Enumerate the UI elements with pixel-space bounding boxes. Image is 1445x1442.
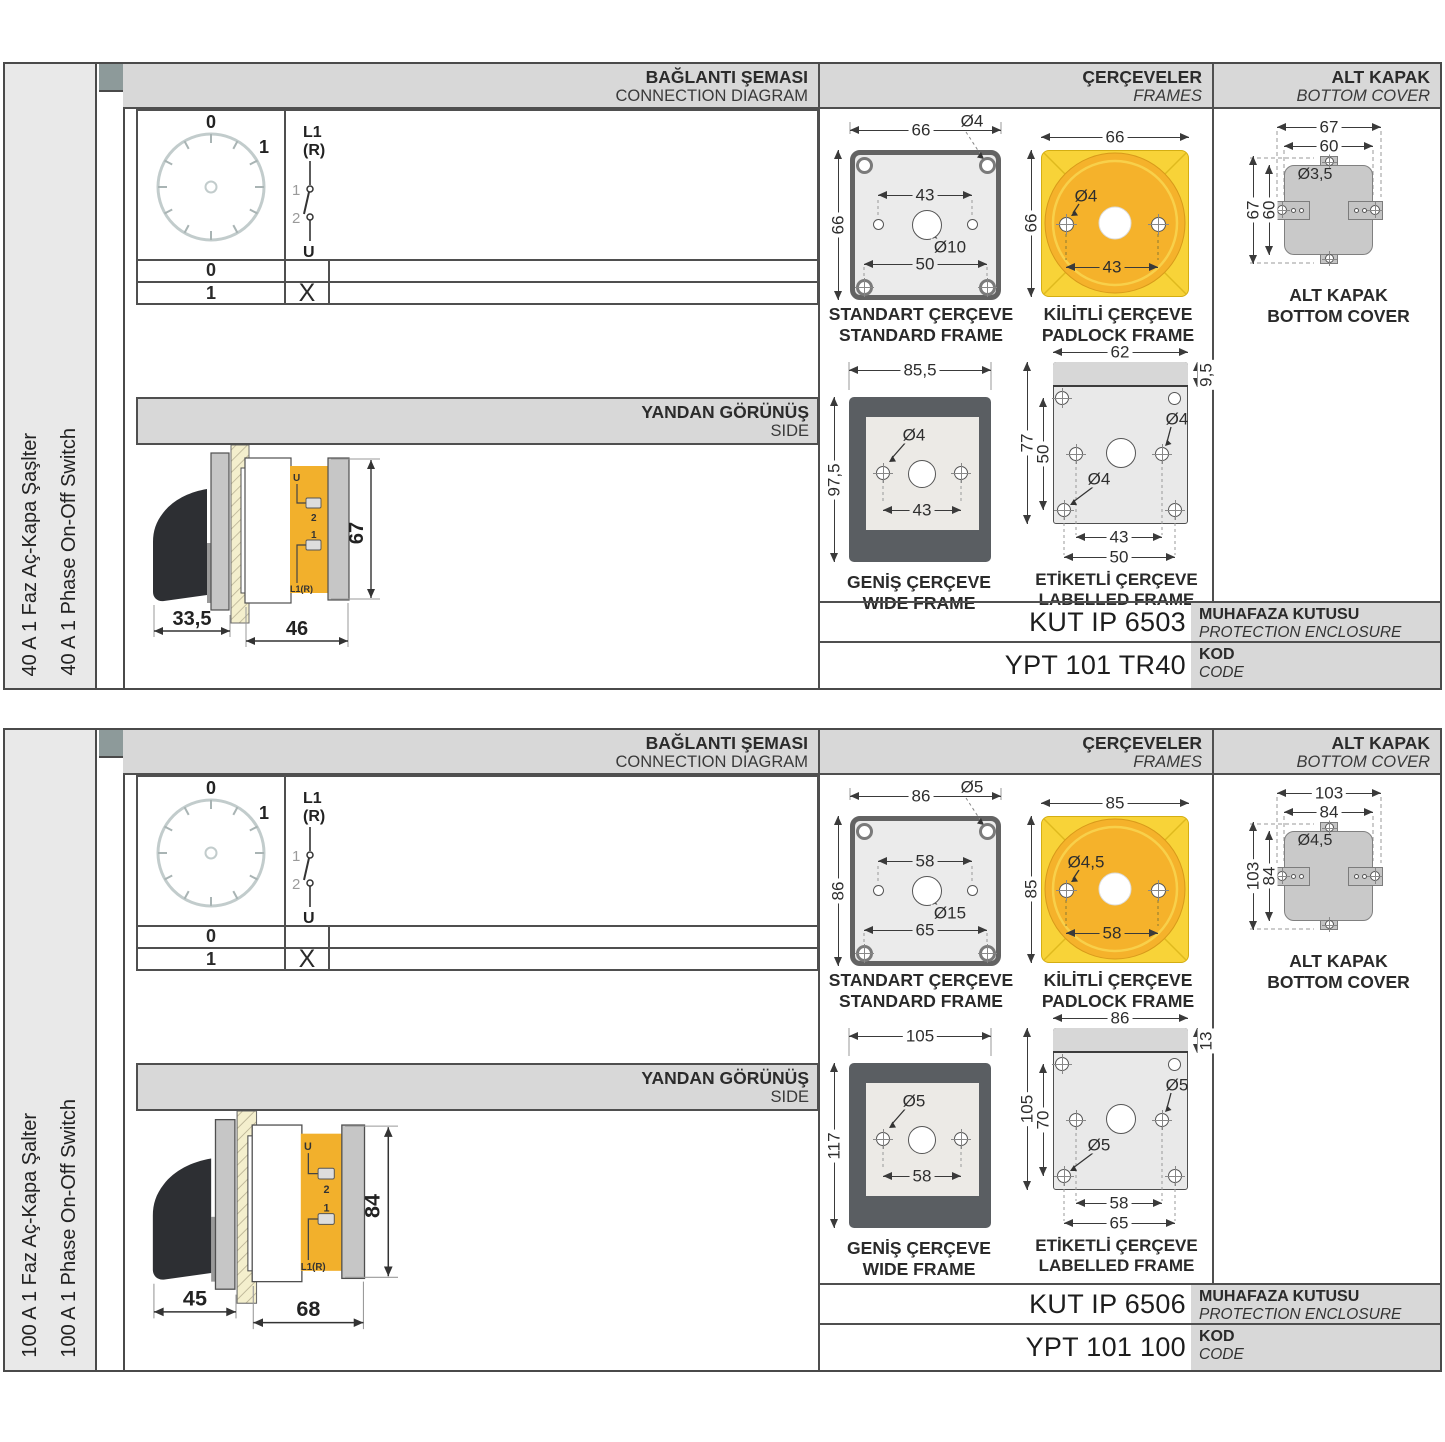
corner-hole: [856, 279, 873, 296]
terminal-block: [301, 1134, 343, 1271]
product-panel: 100 A 1 Faz Aç-Kapa Şalter 100 A 1 Phase…: [3, 728, 1442, 1372]
caption-tr: STANDART ÇERÇEVE: [826, 970, 1016, 991]
switch-output-label: U: [303, 910, 315, 925]
caption-tr: ETİKETLİ ÇERÇEVE: [1019, 570, 1214, 590]
mount-hole: [967, 219, 978, 230]
side-label-tr: 100 A 1 Faz Aç-Kapa Şalter: [19, 1113, 42, 1358]
table-divider: [328, 259, 330, 303]
bottom-cover-caption: ALT KAPAK BOTTOM COVER: [1236, 285, 1441, 327]
front-plate: [211, 453, 229, 610]
table-row0-value: 0: [206, 926, 216, 947]
dim-hole-span: 43: [1100, 259, 1125, 276]
spine-strip: [99, 64, 125, 688]
product-panel: 40 A 1 Faz Aç-Kapa Şaşlter 40 A 1 Phase …: [3, 62, 1442, 690]
table-row1-value: 1: [206, 949, 216, 970]
tab-hole: [1325, 823, 1334, 832]
side-label-column: 40 A 1 Faz Aç-Kapa Şaşlter 40 A 1 Phase …: [5, 64, 97, 688]
code-label: KOD CODE: [1191, 1325, 1440, 1370]
caption-en: BOTTOM COVER: [1236, 972, 1441, 993]
table-row0-position: 0: [138, 259, 284, 281]
bottom-cover-caption: ALT KAPAK BOTTOM COVER: [1236, 951, 1441, 993]
caption-en: STANDARD FRAME: [826, 991, 1016, 1012]
table-row1-position: 1: [138, 947, 284, 971]
shaft-hole: [912, 210, 942, 240]
terminal-l1-label: L1(R): [301, 1262, 326, 1273]
header-side-en: SIDE: [138, 422, 809, 441]
caption-en: WIDE FRAME: [824, 1259, 1014, 1280]
connector-2-label: 2: [323, 1184, 329, 1196]
dim-width: 85,5: [900, 362, 939, 379]
dim-span-1: 43: [1107, 529, 1132, 546]
dim-width: 85: [1103, 795, 1128, 812]
header-bottom-cover-en: BOTTOM COVER: [1214, 87, 1430, 106]
corner-hole: [856, 945, 873, 962]
dim-height: 66: [830, 213, 847, 238]
header-connection-en: CONNECTION DIAGRAM: [123, 753, 808, 772]
enclosure-code: KUT IP 6506: [818, 1285, 1191, 1323]
dial-position-0: 0: [206, 112, 216, 132]
header-frames: ÇERÇEVELER FRAMES: [820, 64, 1212, 109]
mount-hole: [1055, 391, 1069, 405]
header-frames: ÇERÇEVELER FRAMES: [820, 730, 1212, 775]
dim-hole-dia: Ø4: [900, 427, 929, 444]
terminal-u-label: U: [304, 1141, 312, 1153]
labelled-frame-drawing: 86 13 105 70 Ø5 Ø5 58 65 ETİKETLİ ÇERÇEV…: [1019, 1013, 1214, 1269]
switch-input-alt-label: (R): [303, 808, 325, 825]
wide-frame-drawing: 85,5 97,5 Ø4 43 GENİŞ ÇERÇEVE WIDE FRAME: [824, 350, 1014, 602]
dim-height: 67: [346, 522, 368, 544]
terminal-1-label: 1: [292, 182, 300, 199]
dim-inner-height: 50: [1035, 442, 1052, 467]
caption-tr: ALT KAPAK: [1236, 951, 1441, 972]
header-bottom-cover-en: BOTTOM COVER: [1214, 753, 1430, 772]
tab-dot: [1354, 874, 1359, 879]
tab-dot: [1354, 208, 1359, 213]
dial-position-0: 0: [206, 778, 216, 798]
caption-tr: GENİŞ ÇERÇEVE: [824, 1238, 1014, 1259]
tab-hole: [1370, 205, 1380, 215]
header-side-view: YANDAN GÖRÜNÜŞ SIDE: [136, 1063, 819, 1111]
padlock-hole: [1151, 217, 1166, 232]
switch-schematic: L1 (R) 1 2 U: [285, 111, 347, 259]
dim-outer-width: 103: [1312, 785, 1346, 802]
tab-dot: [1362, 208, 1367, 213]
table-row1-contact: X: [286, 947, 328, 971]
dim-hole-span: 43: [913, 187, 938, 204]
switch-input-alt-label: (R): [303, 142, 325, 159]
dim-inner-width: 84: [1317, 804, 1342, 821]
dim-height: 66: [1023, 211, 1040, 236]
code-label-en: CODE: [1199, 1346, 1440, 1364]
table-row1-contact: X: [286, 281, 328, 305]
corner-hole: [979, 279, 996, 296]
header-bottom-cover: ALT KAPAK BOTTOM COVER: [1214, 730, 1440, 775]
padlock-hole: [1059, 217, 1074, 232]
bottom-cover-drawing: 103 84 103 84 Ø4,5 ALT KAPAK BOTTOM COVE…: [1236, 783, 1441, 1003]
standard-frame-drawing: 86 Ø5 86 58 Ø15 65 STANDART ÇERÇEVE STAN…: [826, 778, 1016, 1028]
switch-schematic: L1 (R) 1 2 U: [285, 777, 347, 925]
tab-hole: [1325, 254, 1334, 263]
terminal-block: [290, 466, 329, 593]
connector-1: [318, 1214, 334, 1225]
wide-frame-drawing: 105 117 Ø5 58 GENİŞ ÇERÇEVE WIDE FRAME: [824, 1016, 1014, 1268]
corner-hole: [979, 157, 996, 174]
dim-span-1: 58: [1107, 1195, 1132, 1212]
tab-dot: [1299, 208, 1304, 213]
dim-width: 86: [1108, 1010, 1133, 1027]
mount-hole: [1155, 1113, 1169, 1127]
mount-hole: [1155, 447, 1169, 461]
dim-span-2: 50: [1107, 549, 1132, 566]
standard-frame-caption: STANDART ÇERÇEVE STANDARD FRAME: [826, 970, 1016, 1012]
shaft-hole: [1106, 1104, 1136, 1134]
padlock-hole: [1059, 883, 1074, 898]
caption-tr: ALT KAPAK: [1236, 285, 1441, 306]
table-row0-position: 0: [138, 925, 284, 947]
header-connection-en: CONNECTION DIAGRAM: [123, 87, 808, 106]
connection-diagram-box: 0 1 L1 (R) 1 2 U 0 1 X: [136, 775, 819, 971]
side-label-en: 40 A 1 Phase On-Off Switch: [58, 428, 81, 676]
plain-hole: [1168, 392, 1181, 405]
product-code: YPT 101 100: [818, 1325, 1191, 1370]
spine-strip: [99, 730, 125, 1370]
caption-en: LABELLED FRAME: [1019, 1256, 1214, 1276]
mount-hole: [1069, 447, 1083, 461]
enclosure-label-en: PROTECTION ENCLOSURE: [1199, 1306, 1440, 1324]
tab-hole: [1370, 871, 1380, 881]
caption-tr: ETİKETLİ ÇERÇEVE: [1019, 1236, 1214, 1256]
tab-dot: [1299, 874, 1304, 879]
dim-hole-dia-1: Ø4: [1163, 411, 1192, 428]
header-frames-tr: ÇERÇEVELER: [820, 67, 1202, 87]
dim-strip-height: 9,5: [1198, 360, 1215, 390]
dim-height: 85: [1023, 877, 1040, 902]
dim-height: 86: [830, 879, 847, 904]
side-label-column: 100 A 1 Faz Aç-Kapa Şalter 100 A 1 Phase…: [5, 730, 97, 1370]
enclosure-row: KUT IP 6503 MUHAFAZA KUTUSU PROTECTION E…: [818, 601, 1440, 643]
mount-hole: [1168, 1169, 1182, 1183]
dim-height: 97,5: [826, 460, 843, 499]
dim-bottom-span: 50: [913, 256, 938, 273]
header-side-tr: YANDAN GÖRÜNÜŞ: [138, 402, 809, 422]
header-connection-diagram: BAĞLANTI ŞEMASI CONNECTION DIAGRAM: [123, 730, 818, 775]
caption-en: STANDARD FRAME: [826, 325, 1016, 346]
dim-span-2: 65: [1107, 1215, 1132, 1232]
connection-diagram-box: 0 1 L1 (R) 1 2 U 0 1 X: [136, 109, 819, 305]
dim-hole-span: 58: [913, 853, 938, 870]
mount-hole: [873, 219, 884, 230]
spine-square: [99, 730, 123, 758]
padlock-hole: [1151, 883, 1166, 898]
enclosure-code: KUT IP 6503: [818, 603, 1191, 641]
dim-center-hole-dia: Ø15: [931, 905, 969, 922]
front-plate: [215, 1120, 234, 1290]
dim-inner-height: 60: [1261, 198, 1278, 223]
enclosure-row: KUT IP 6506 MUHAFAZA KUTUSU PROTECTION E…: [818, 1283, 1440, 1325]
side-label-en: 100 A 1 Phase On-Off Switch: [58, 1099, 81, 1358]
standard-frame-drawing: 66 Ø4 66 43 Ø10 50 STANDART ÇERÇEVE STAN…: [826, 112, 1016, 362]
terminal-2-label: 2: [292, 210, 300, 227]
dial-position-1: 1: [259, 137, 269, 157]
dim-height: 117: [826, 1129, 843, 1162]
caption-tr: GENİŞ ÇERÇEVE: [824, 572, 1014, 593]
dim-body-depth: 68: [296, 1296, 320, 1321]
mount-hole: [1168, 503, 1182, 517]
padlock-frame-drawing: 66 66 Ø4 43 KİLİTLİ ÇERÇEVE PADLOCK FRAM…: [1023, 112, 1213, 362]
dim-hole-dia: Ø4,5: [1295, 833, 1336, 849]
tab-dot: [1291, 874, 1296, 879]
code-label-tr: KOD: [1199, 645, 1440, 664]
code-row: YPT 101 100 KOD CODE: [818, 1325, 1440, 1370]
mount-hole: [954, 1132, 968, 1146]
tab-hole: [1277, 871, 1287, 881]
enclosure-label-tr: MUHAFAZA KUTUSU: [1199, 1287, 1440, 1306]
dim-hole-dia: Ø5: [900, 1093, 929, 1110]
caption-tr: KİLİTLİ ÇERÇEVE: [1023, 970, 1213, 991]
connector-1-label: 1: [323, 1202, 329, 1214]
switch-input-label: L1: [303, 124, 322, 141]
shaft-hole: [908, 1126, 936, 1154]
rotary-dial-drawing: 0 1: [138, 111, 286, 259]
dim-corner-hole-dia: Ø4: [958, 113, 987, 130]
switch-body: [252, 1125, 302, 1282]
padlock-frame-drawing: 85 85 Ø4,5 58 KİLİTLİ ÇERÇEVE PADLOCK FR…: [1023, 778, 1213, 1028]
terminal-2-label: 2: [292, 876, 300, 893]
table-row1-contact-mark: X: [299, 945, 316, 974]
shaft-hole: [912, 876, 942, 906]
enclosure-label: MUHAFAZA KUTUSU PROTECTION ENCLOSURE: [1191, 1285, 1440, 1323]
caption-en: BOTTOM COVER: [1236, 306, 1441, 327]
terminal-1-label: 1: [292, 848, 300, 865]
dim-hole-dia: Ø4,5: [1065, 854, 1108, 871]
header-connection-tr: BAĞLANTI ŞEMASI: [123, 733, 808, 753]
header-connection-tr: BAĞLANTI ŞEMASI: [123, 67, 808, 87]
switch-handle: [153, 489, 207, 601]
dim-inner-height: 84: [1261, 864, 1278, 889]
mount-hole: [967, 885, 978, 896]
dim-bottom-span: 65: [913, 922, 938, 939]
shaft-hole: [1106, 438, 1136, 468]
side-view-drawing: U 2 1 L1(R) 84 45 68: [144, 1111, 425, 1370]
dim-hole-dia-2: Ø4: [1085, 471, 1114, 488]
shaft-hole: [908, 460, 936, 488]
dim-hole-dia-1: Ø5: [1163, 1077, 1192, 1094]
header-side-tr: YANDAN GÖRÜNÜŞ: [138, 1068, 809, 1088]
padlock-frame-caption: KİLİTLİ ÇERÇEVE PADLOCK FRAME: [1023, 304, 1213, 346]
dim-height: 84: [360, 1194, 385, 1218]
dim-corner-hole-dia: Ø5: [958, 779, 987, 796]
table-row0-value: 0: [206, 260, 216, 281]
tab-hole: [1277, 205, 1287, 215]
dim-handle-depth: 45: [183, 1285, 207, 1310]
labelled-frame-drawing: 62 9,5 77 50 Ø4 Ø4 43 50 ETİKETLİ ÇERÇEV…: [1019, 347, 1214, 603]
mount-hole: [876, 466, 890, 480]
dim-body-depth: 46: [286, 618, 308, 640]
table-divider: [328, 925, 330, 969]
dim-width: 66: [909, 122, 934, 139]
mount-hole: [876, 1132, 890, 1146]
labelled-frame-caption: ETİKETLİ ÇERÇEVE LABELLED FRAME: [1019, 1236, 1214, 1276]
header-side-en: SIDE: [138, 1088, 809, 1107]
enclosure-label-en: PROTECTION ENCLOSURE: [1199, 624, 1440, 642]
connector-1-label: 1: [311, 530, 317, 541]
switch-handle: [153, 1159, 211, 1280]
header-bottom-cover-tr: ALT KAPAK: [1214, 67, 1430, 87]
dim-width: 86: [909, 788, 934, 805]
table-row1-value: 1: [206, 283, 216, 304]
mount-hole: [954, 466, 968, 480]
dim-hole-span: 58: [910, 1168, 935, 1185]
connector-1: [306, 540, 321, 550]
tab-hole: [1325, 920, 1334, 929]
dim-inner-height: 70: [1035, 1108, 1052, 1133]
enclosure-label-tr: MUHAFAZA KUTUSU: [1199, 605, 1440, 624]
dim-handle-depth: 33,5: [173, 608, 212, 630]
mount-hole: [1069, 1113, 1083, 1127]
mount-hole: [1057, 503, 1071, 517]
dim-strip-height: 13: [1198, 1029, 1215, 1054]
tab-dot: [1291, 208, 1296, 213]
code-label-tr: KOD: [1199, 1327, 1440, 1346]
header-bottom-cover-tr: ALT KAPAK: [1214, 733, 1430, 753]
wide-frame-caption: GENİŞ ÇERÇEVE WIDE FRAME: [824, 1238, 1014, 1280]
tab-dot: [1362, 874, 1367, 879]
corner-hole: [856, 823, 873, 840]
caption-tr: STANDART ÇERÇEVE: [826, 304, 1016, 325]
dim-hole-span: 43: [910, 502, 935, 519]
switch-body: [245, 458, 291, 603]
dim-center-hole-dia: Ø10: [931, 239, 969, 256]
connector-2: [306, 498, 321, 508]
corner-hole: [856, 157, 873, 174]
caption-tr: KİLİTLİ ÇERÇEVE: [1023, 304, 1213, 325]
product-code: YPT 101 TR40: [818, 643, 1191, 688]
dim-outer-width: 67: [1317, 119, 1342, 136]
terminal-u-label: U: [293, 473, 300, 484]
bottom-cover-drawing: 67 60 67 60 Ø3,5 ALT KAPAK BOTTOM COVER: [1236, 117, 1441, 337]
tab-hole: [1325, 157, 1334, 166]
dim-hole-span: 58: [1100, 925, 1125, 942]
terminal-l1-label: L1(R): [290, 584, 313, 594]
corner-hole: [979, 945, 996, 962]
plain-hole: [1168, 1058, 1181, 1071]
dim-inner-width: 60: [1317, 138, 1342, 155]
spine-square: [99, 64, 123, 92]
header-frames-en: FRAMES: [820, 87, 1202, 106]
side-view-drawing: U 2 1 L1(R) 67 33,5 46: [145, 445, 405, 685]
enclosure-label: MUHAFAZA KUTUSU PROTECTION ENCLOSURE: [1191, 603, 1440, 641]
table-row1-contact-mark: X: [299, 279, 316, 308]
code-label-en: CODE: [1199, 664, 1440, 682]
mount-hole: [873, 885, 884, 896]
table-row1-position: 1: [138, 281, 284, 305]
connector-2-label: 2: [311, 513, 317, 524]
code-label: KOD CODE: [1191, 643, 1440, 688]
mount-hole: [1057, 1169, 1071, 1183]
dim-width: 66: [1103, 129, 1128, 146]
corner-hole: [979, 823, 996, 840]
dim-hole-dia: Ø3,5: [1295, 167, 1336, 183]
dim-hole-dia: Ø4: [1072, 188, 1101, 205]
switch-output-label: U: [303, 244, 315, 259]
dim-width: 105: [903, 1028, 937, 1045]
header-bottom-cover: ALT KAPAK BOTTOM COVER: [1214, 64, 1440, 109]
side-label-tr: 40 A 1 Faz Aç-Kapa Şaşlter: [19, 433, 42, 676]
dial-position-1: 1: [259, 803, 269, 823]
dim-width: 62: [1108, 344, 1133, 361]
connector-2: [318, 1168, 334, 1179]
padlock-frame-caption: KİLİTLİ ÇERÇEVE PADLOCK FRAME: [1023, 970, 1213, 1012]
header-frames-en: FRAMES: [820, 753, 1202, 772]
standard-frame-caption: STANDART ÇERÇEVE STANDARD FRAME: [826, 304, 1016, 346]
header-connection-diagram: BAĞLANTI ŞEMASI CONNECTION DIAGRAM: [123, 64, 818, 109]
header-frames-tr: ÇERÇEVELER: [820, 733, 1202, 753]
switch-input-label: L1: [303, 790, 322, 807]
code-row: YPT 101 TR40 KOD CODE: [818, 643, 1440, 688]
catalog-page: 40 A 1 Faz Aç-Kapa Şaşlter 40 A 1 Phase …: [0, 0, 1445, 1442]
header-side-view: YANDAN GÖRÜNÜŞ SIDE: [136, 397, 819, 445]
dim-hole-dia-2: Ø5: [1085, 1137, 1114, 1154]
mount-hole: [1055, 1057, 1069, 1071]
rotary-dial-drawing: 0 1: [138, 777, 286, 925]
